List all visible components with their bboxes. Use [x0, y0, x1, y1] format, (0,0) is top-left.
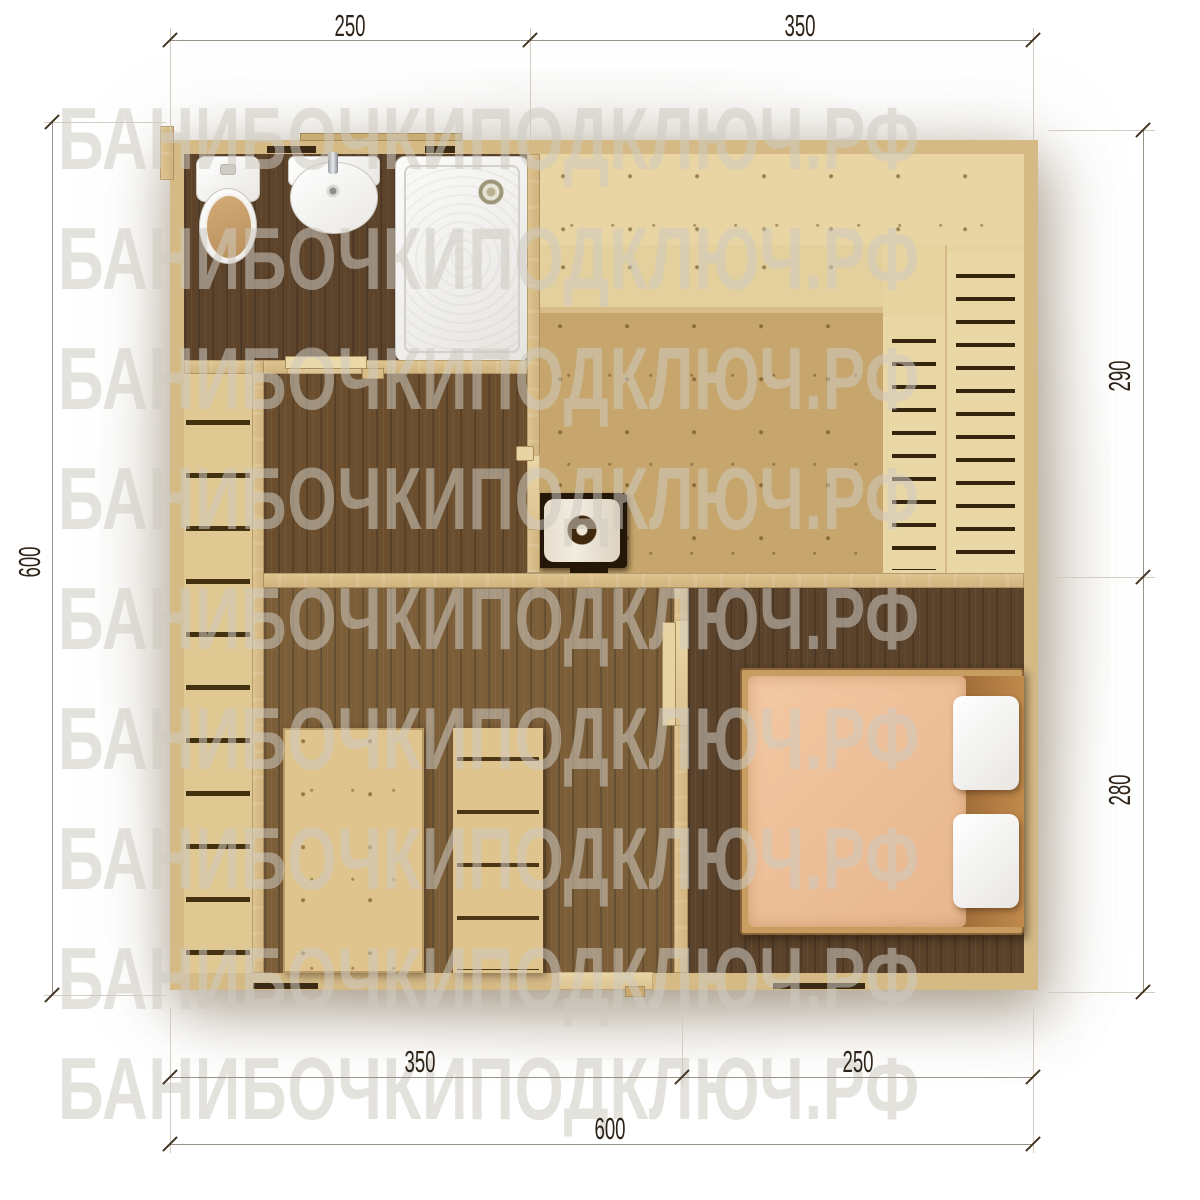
sauna-door-handle [516, 446, 534, 461]
exterior-ledge [300, 133, 462, 141]
sauna-middle-bench [540, 245, 893, 307]
dimension-label-left: 600 [12, 544, 48, 580]
stove-ring-icon [567, 515, 597, 545]
toilet-lid [205, 194, 253, 260]
dimension-label-right-lower: 280 [1102, 772, 1138, 808]
toilet-button [220, 164, 236, 175]
dimension-line-right [1143, 130, 1144, 992]
pillow [953, 696, 1019, 790]
bedroom-door-opening [674, 620, 688, 726]
extension-line [170, 28, 171, 140]
sauna-upper-bench [540, 154, 1024, 245]
sauna-stove [537, 493, 627, 568]
building-plan [170, 140, 1038, 990]
bathroom-door-leaf [285, 356, 367, 369]
shower-tray [395, 156, 529, 362]
extension-line [1033, 28, 1034, 140]
bench-steps [453, 728, 543, 973]
dimension-line-top [170, 40, 1033, 41]
bedroom-door-leaf [662, 622, 676, 726]
window-marker [425, 146, 455, 153]
table [283, 728, 424, 973]
dimension-label-bottom-total: 600 [592, 1111, 628, 1147]
sauna-right-bench [947, 252, 1024, 573]
floor-plan-image: БАНИБОЧКИПОДКЛЮЧ.РФ БАНИБОЧКИПОДКЛЮЧ.РФ … [0, 0, 1200, 1200]
window-marker [267, 146, 316, 153]
window-marker [253, 983, 318, 989]
extension-line [1033, 1008, 1034, 1153]
bed-mattress [748, 676, 966, 927]
corner-log-end [160, 126, 174, 180]
extension-line [44, 995, 166, 996]
wall-terrace-east [252, 360, 264, 973]
faucet-icon [328, 152, 338, 174]
window-marker [773, 983, 865, 989]
extension-line [530, 28, 531, 140]
dimension-label-right-upper: 290 [1102, 358, 1138, 394]
sauna-door-opening [527, 455, 540, 530]
bathroom-door-handle [362, 368, 384, 379]
terrace-deck [184, 374, 252, 973]
extension-line [44, 122, 166, 123]
wall-sauna-south [252, 573, 1024, 588]
pillow [953, 814, 1019, 908]
dimension-label-bottom-left: 350 [402, 1044, 438, 1080]
sink-drain [326, 184, 340, 198]
dimension-label-top-right: 350 [782, 8, 818, 44]
entrance-door-handle [625, 986, 645, 997]
sauna-side-bench [883, 317, 945, 573]
washroom-floor [264, 374, 527, 573]
dimension-line-left [52, 122, 53, 995]
shower-drain [478, 179, 504, 205]
dimension-label-top-left: 250 [332, 8, 368, 44]
dimension-label-bottom-right: 250 [840, 1044, 876, 1080]
extension-line [170, 1008, 171, 1153]
dimension-line-bottom-inner [170, 1077, 1033, 1078]
